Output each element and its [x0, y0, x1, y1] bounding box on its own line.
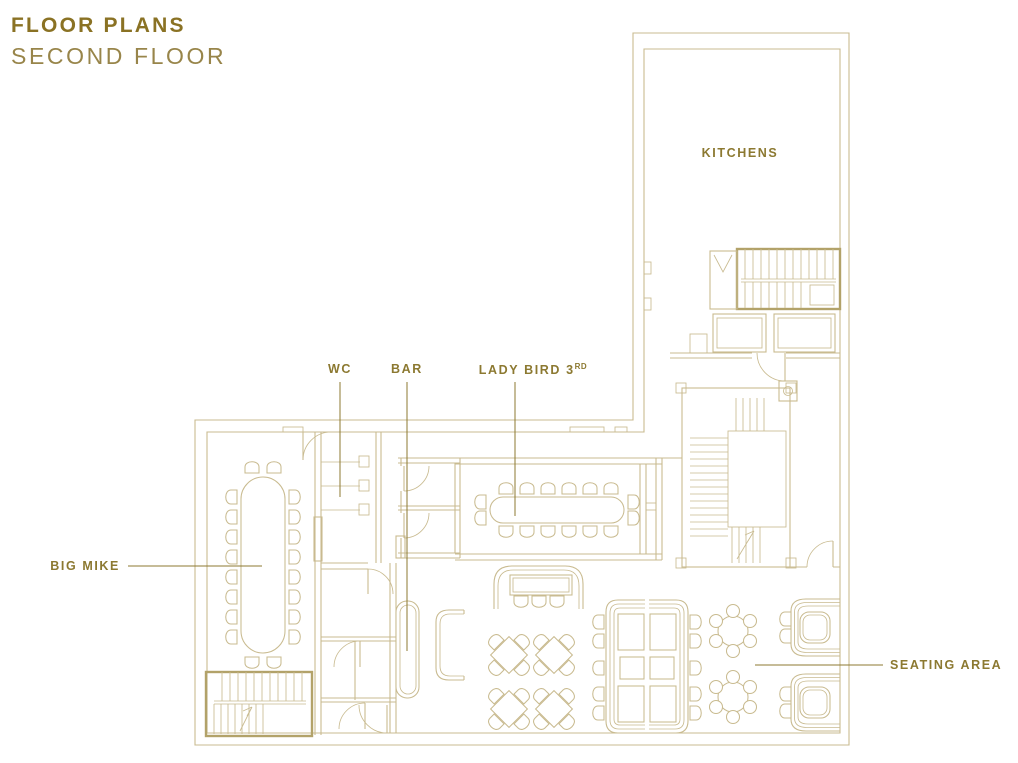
label-big-mike: BIG MIKE — [50, 559, 120, 573]
label-lady-bird: LADY BIRD 3RD — [479, 362, 587, 377]
floor-plan-drawing — [0, 0, 1018, 763]
lady-bird-room — [455, 458, 662, 560]
kitchen-equipment — [713, 314, 835, 352]
host-booth — [494, 566, 583, 609]
lady-bird-ordinal: RD — [575, 362, 588, 371]
page-title: FLOOR PLANS SECOND FLOOR — [11, 14, 226, 70]
floor-plan-page: FLOOR PLANS SECOND FLOOR KITCHENS WC BAR… — [0, 0, 1018, 763]
big-mike-table — [241, 477, 285, 653]
lady-bird-table — [490, 497, 624, 523]
communal-banquettes — [593, 600, 702, 733]
closet-rooms — [396, 458, 460, 558]
round-tables — [710, 605, 757, 724]
kitchen-stairs-icon — [710, 249, 840, 309]
page-title-line2: SECOND FLOOR — [11, 43, 226, 70]
wc-area — [314, 432, 396, 733]
label-kitchens: KITCHENS — [702, 146, 779, 160]
label-wc: WC — [328, 362, 352, 376]
big-mike-room — [206, 432, 331, 736]
page-title-line1: FLOOR PLANS — [11, 14, 226, 38]
label-bar: BAR — [391, 362, 423, 376]
big-mike-stairs-icon — [206, 672, 312, 736]
central-stairwell — [662, 381, 840, 568]
kitchen-wing — [644, 249, 840, 381]
label-seating-area: SEATING AREA — [890, 658, 1002, 672]
bar-counter — [396, 601, 464, 698]
four-top-tables — [473, 619, 589, 744]
